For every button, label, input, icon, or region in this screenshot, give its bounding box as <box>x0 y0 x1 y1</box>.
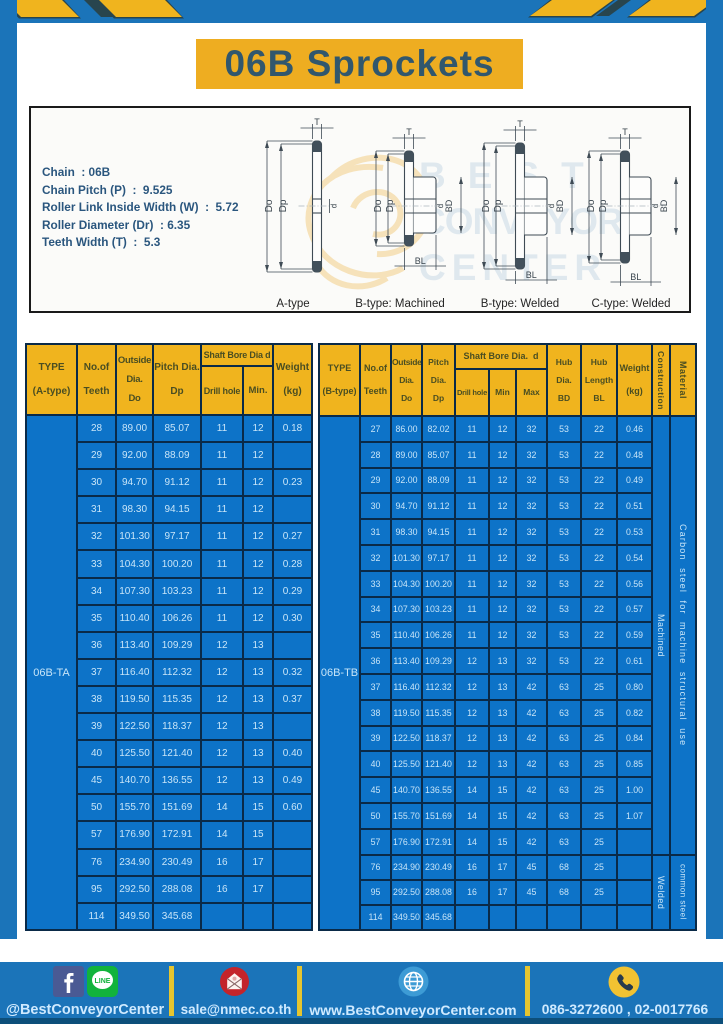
svg-text:Dp: Dp <box>598 199 609 212</box>
svg-text:BD: BD <box>444 199 454 212</box>
svg-text:Dp: Dp <box>278 199 289 212</box>
svg-text:BD: BD <box>659 199 669 212</box>
svg-text:Do: Do <box>481 199 492 212</box>
svg-text:T: T <box>406 127 412 137</box>
svg-text:BL: BL <box>630 272 641 282</box>
svg-text:Do: Do <box>264 199 275 212</box>
svg-text:T: T <box>314 117 320 127</box>
svg-text:B-type: Machined: B-type: Machined <box>355 298 445 310</box>
svg-text:d: d <box>330 204 339 208</box>
svg-text:BL: BL <box>526 270 537 280</box>
svg-text:B-type: Welded: B-type: Welded <box>481 298 559 310</box>
svg-text:Do: Do <box>373 199 384 212</box>
svg-text:Dp: Dp <box>493 199 504 212</box>
svg-text:Do: Do <box>586 199 597 212</box>
svg-text:BD: BD <box>555 199 565 212</box>
svg-text:T: T <box>517 119 523 129</box>
svg-text:C-type: Welded: C-type: Welded <box>591 298 670 310</box>
svg-text:LINE: LINE <box>95 978 111 985</box>
svg-text:Dp: Dp <box>385 199 396 212</box>
svg-text:A-type: A-type <box>276 298 309 310</box>
svg-text:T: T <box>622 127 628 137</box>
svg-text:BL: BL <box>415 256 426 266</box>
